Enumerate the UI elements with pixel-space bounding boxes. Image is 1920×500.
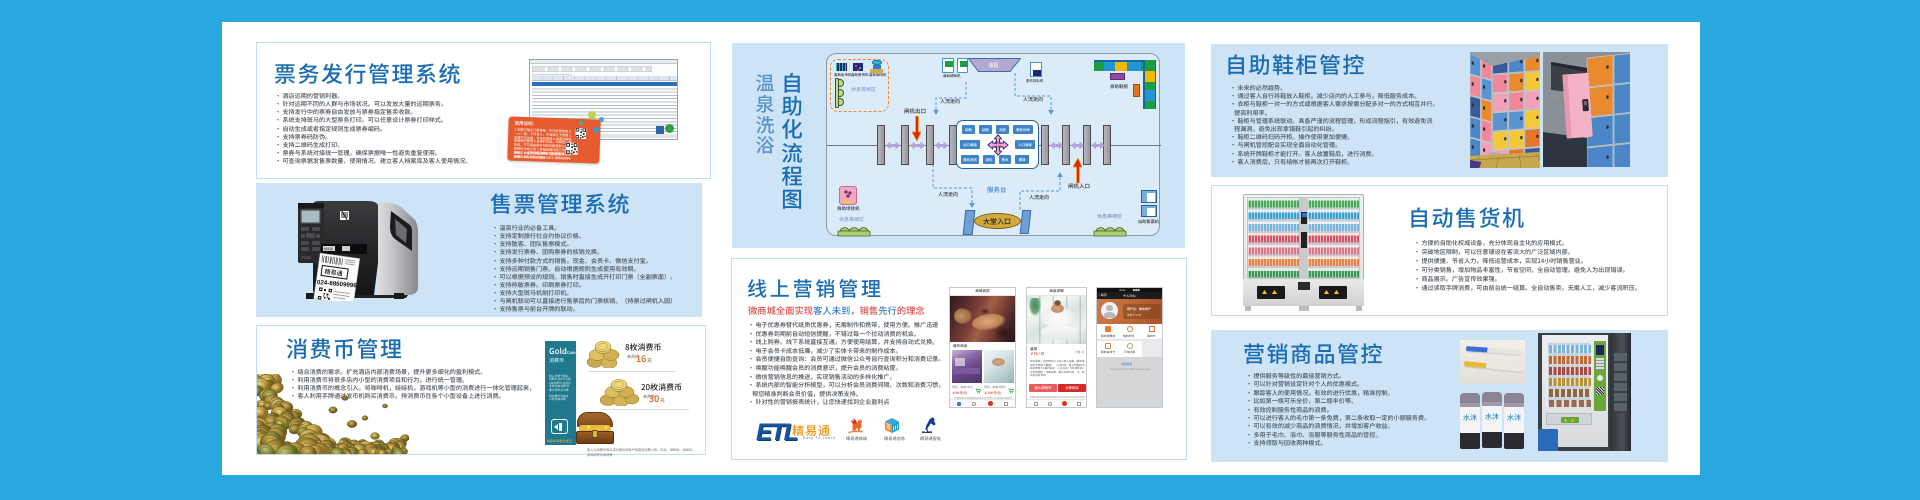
svg-text:精易通: 精易通 [324, 246, 333, 251]
svg-text:ZT230: ZT230 [301, 256, 311, 260]
